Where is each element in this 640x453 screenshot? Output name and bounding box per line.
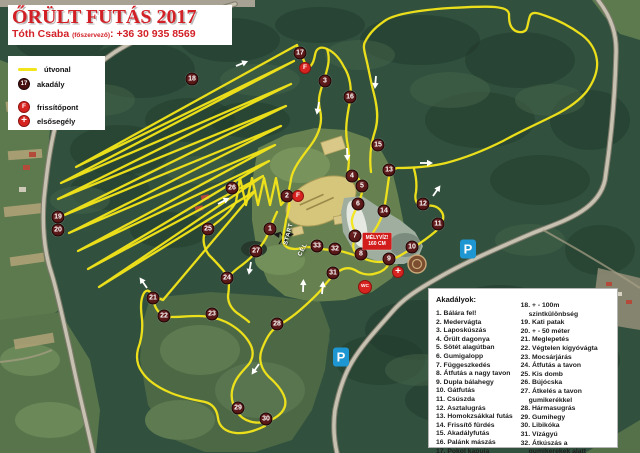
obstacle-marker-33: 33 [311, 240, 324, 253]
obstacle-marker-21: 21 [147, 292, 160, 305]
course-map-poster: 1234567891011121314151617181920212223242… [0, 0, 640, 453]
obstacle-marker-32: 32 [329, 243, 342, 256]
obstacle-list-item: 10. Gátfutás [436, 387, 515, 396]
obstacle-list-column-2: 18. + - 100m szintkülönbség19. Kati pata… [521, 302, 610, 453]
obstacle-marker-6: 6 [352, 198, 365, 211]
obstacle-marker-22: 22 [158, 310, 171, 323]
obstacle-list-item: 31. Vízágyú [521, 431, 610, 440]
obstacle-list-item: 29. Gumihegy [521, 414, 610, 423]
obstacle-marker-10: 10 [406, 241, 419, 254]
parking-sign: P [460, 240, 476, 259]
obstacle-list-item: 7. Függeszkedés [436, 362, 515, 371]
obstacle-marker-31: 31 [327, 267, 340, 280]
deep-water-sign: MÉLYVÍZ!160 CM [363, 233, 392, 250]
obstacle-marker-15: 15 [372, 139, 385, 152]
obstacle-list-item: 2. Medervágta [436, 319, 515, 328]
title-panel: ŐRÜLT FUTÁS 2017 Tóth Csaba (főszervező)… [8, 5, 232, 45]
refresh-point-marker: F [292, 190, 304, 202]
separator: : [110, 28, 114, 40]
legend-label: frissítőpont [37, 103, 78, 112]
refresh-point-icon: F [18, 101, 30, 113]
obstacle-marker-8: 8 [355, 248, 368, 261]
obstacle-list-item: 22. Végtelen kígyóvágta [521, 345, 610, 354]
obstacle-list-item: 4. Őrült dagonya [436, 336, 515, 345]
obstacle-list-item: 30. Libikóka [521, 422, 610, 431]
obstacle-list-item: 13. Homokzsákkal futás [436, 413, 515, 422]
obstacle-marker-17: 17 [294, 47, 307, 60]
parking-sign: P [333, 348, 349, 367]
obstacle-list-item: 1. Bálára fel! [436, 310, 515, 319]
legend-label: akadály [37, 80, 65, 89]
obstacle-marker-27: 27 [250, 245, 263, 258]
obstacle-marker-28: 28 [271, 318, 284, 331]
obstacle-list-item: 19. Kati patak [521, 319, 610, 328]
obstacle-list-item: 24. Átfutás a tavon [521, 362, 610, 371]
obstacle-marker-24: 24 [221, 272, 234, 285]
event-title: ŐRÜLT FUTÁS 2017 [12, 6, 228, 28]
route-line-icon [18, 68, 37, 71]
obstacle-list-item: 8. Átfutás a nagy tavon [436, 370, 515, 379]
obstacle-list-item: 25. Kis domb [521, 371, 610, 380]
first-aid-cross-icon: + [18, 115, 30, 127]
obstacle-marker-1: 1 [264, 223, 277, 236]
obstacle-list-item: 26. Bújócska [521, 379, 610, 388]
obstacle-list-item: 17. Pokol kapuja [436, 448, 515, 453]
obstacle-list-item: 6. Gumigalopp [436, 353, 515, 362]
obstacle-list-item: 18. + - 100m szintkülönbség [521, 302, 610, 319]
obstacle-marker-20: 20 [52, 224, 65, 237]
obstacle-marker-26: 26 [226, 182, 239, 195]
obstacle-marker-5: 5 [356, 180, 369, 193]
obstacle-marker-25: 25 [202, 223, 215, 236]
obstacle-list-panel: Akadályok: 1. Bálára fel!2. Medervágta3.… [428, 288, 618, 448]
obstacle-marker-3: 3 [319, 75, 332, 88]
obstacle-list-item: 15. Akadályfutás [436, 430, 515, 439]
obstacle-marker-29: 29 [232, 402, 245, 415]
obstacle-list-item: 12. Asztalugrás [436, 405, 515, 414]
legend-label: elsősegély [37, 117, 75, 126]
first-aid-marker: + [392, 266, 404, 278]
obstacle-list-item: 21. Meglepetés [521, 336, 610, 345]
obstacle-list-item: 9. Dupla bálahegy [436, 379, 515, 388]
finish-label: CÉL [297, 242, 309, 257]
obstacle-marker-16: 16 [344, 91, 357, 104]
obstacle-list-item: 3. Laposkúszás [436, 327, 515, 336]
obstacle-marker-13: 13 [383, 164, 396, 177]
obstacle-marker-icon: 17 [18, 78, 30, 90]
organizer-role: (főszervező) [72, 32, 110, 39]
obstacle-list-item: 14. Frissítő fürdés [436, 422, 515, 431]
obstacle-marker-30: 30 [260, 413, 273, 426]
refresh-point-marker: F [299, 62, 311, 74]
obstacle-list-item: 28. Hármasugrás [521, 405, 610, 414]
obstacle-marker-14: 14 [378, 205, 391, 218]
legend-panel: útvonal 17 akadály F frissítőpont + első… [8, 56, 105, 130]
obstacle-list-item: 5. Sötét alagútban [436, 344, 515, 353]
obstacle-list-column-1: 1. Bálára fel!2. Medervágta3. Laposkúszá… [436, 310, 515, 453]
obstacle-list-item: 16. Palánk mászás [436, 439, 515, 448]
obstacle-marker-12: 12 [417, 198, 430, 211]
obstacle-list-item: 20. + - 50 méter [521, 328, 610, 337]
legend-row-firstaid: + elsősegély [18, 115, 75, 127]
obstacle-marker-9: 9 [383, 253, 396, 266]
organizer-phone: +36 30 935 8569 [116, 28, 195, 40]
legend-row-route: útvonal [18, 65, 71, 74]
wc-marker: WC [358, 280, 372, 294]
obstacle-marker-11: 11 [432, 218, 445, 231]
obstacle-list-item: 11. Csúszda [436, 396, 515, 405]
obstacle-marker-23: 23 [206, 308, 219, 321]
obstacle-marker-18: 18 [186, 73, 199, 86]
legend-label: útvonal [44, 65, 71, 74]
obstacle-list-item: 32. Átkúszás a gumikerekek alatt [521, 440, 610, 453]
obstacle-list-item: 27. Átkelés a tavon gumikerékkel [521, 388, 610, 405]
legend-row-obstacle: 17 akadály [18, 78, 65, 90]
start-label: START [283, 222, 295, 245]
organizer-name: Tóth Csaba [12, 28, 69, 40]
obstacle-list-columns: 1. Bálára fel!2. Medervágta3. Laposkúszá… [436, 310, 610, 453]
organizer-contact: Tóth Csaba (főszervező): +36 30 935 8569 [12, 28, 228, 42]
legend-row-refresh: F frissítőpont [18, 101, 78, 113]
obstacle-marker-19: 19 [52, 211, 65, 224]
obstacle-list-item: 23. Mocsárjárás [521, 354, 610, 363]
obstacle-marker-7: 7 [349, 230, 362, 243]
